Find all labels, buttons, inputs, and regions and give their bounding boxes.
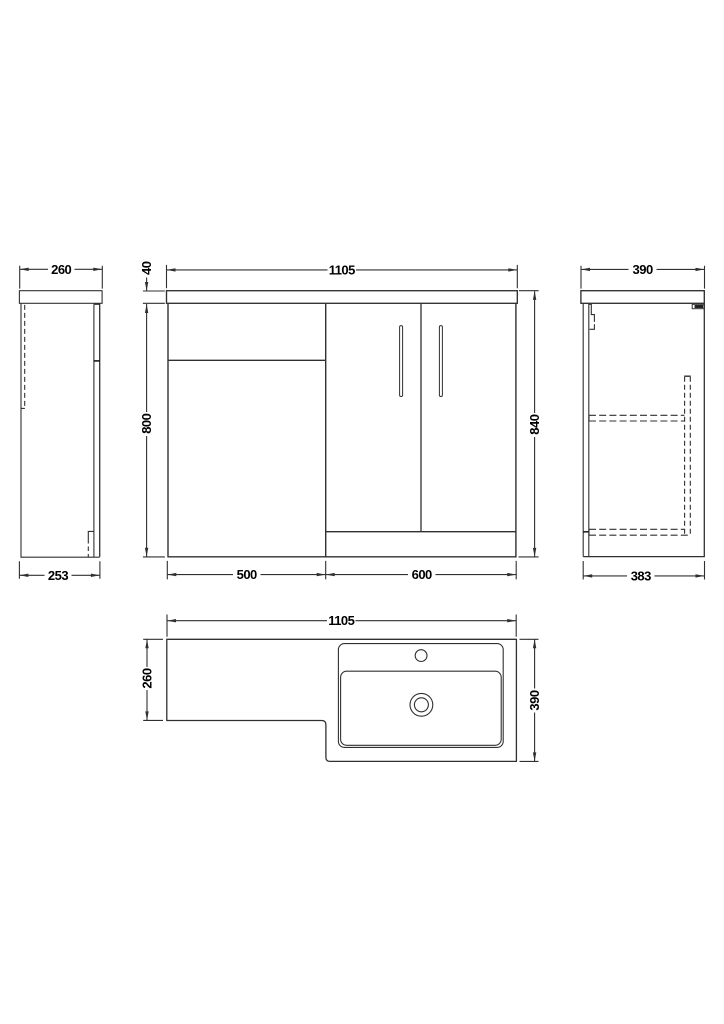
svg-text:840: 840 [527, 414, 542, 434]
svg-text:40: 40 [139, 261, 154, 275]
svg-text:600: 600 [412, 567, 432, 582]
svg-text:1105: 1105 [329, 262, 355, 277]
svg-text:500: 500 [237, 567, 257, 582]
svg-text:390: 390 [527, 690, 542, 710]
svg-text:253: 253 [48, 568, 68, 583]
svg-text:260: 260 [140, 668, 155, 688]
svg-text:260: 260 [51, 262, 71, 277]
svg-text:390: 390 [632, 262, 652, 277]
svg-text:800: 800 [139, 413, 154, 433]
svg-text:1105: 1105 [328, 613, 354, 628]
svg-text:383: 383 [631, 568, 651, 583]
